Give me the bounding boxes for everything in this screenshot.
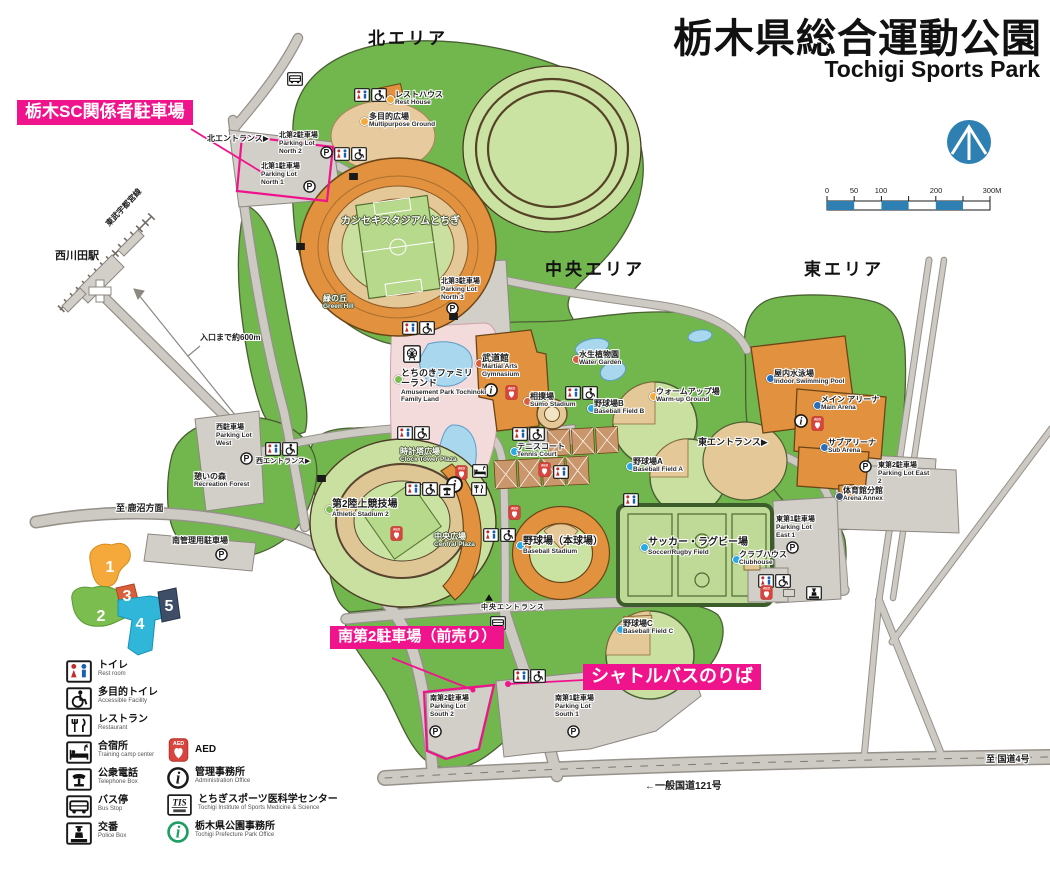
wheelchair-icon [283, 443, 298, 456]
toilet-icon [624, 494, 639, 507]
label-family-land: とちのきファミリーランドAmusement Park Tochinoki Fam… [401, 368, 491, 404]
wheelchair-icon [415, 427, 430, 440]
warmup-ground-shape [703, 422, 787, 500]
aed-icon [168, 738, 189, 762]
scale-bar: 0 50 100 200 300M [825, 186, 1001, 210]
marker-rest-house [386, 95, 395, 104]
aed-icon [509, 506, 521, 520]
legend-row-admin-office: 管理事務所Administration Office [167, 767, 250, 789]
police-box-icon [66, 822, 92, 845]
toilet-icon [335, 148, 350, 161]
label-forest: 憩いの森Recreation Forest [194, 472, 249, 489]
gate-shape [296, 243, 305, 250]
label-west-entrance: 西エントランス▶ [256, 458, 310, 466]
toilet-icon [355, 89, 370, 102]
label-field-b: 野球場BBaseball Field B [594, 399, 644, 416]
training-camp-icon [66, 741, 92, 764]
label-approach-distance: 入口まで約600m [200, 333, 260, 342]
label-lot-south-mgmt: 南管理用駐車場 [172, 536, 228, 545]
label-lot-north3: 北第3駐車場Parking Lot North 3 [441, 278, 489, 301]
label-lot-north1: 北第1駐車場Parking Lot North 1 [261, 163, 309, 186]
minimap-number-5: 5 [165, 598, 174, 615]
telephone-icon [440, 485, 455, 498]
nishikawada-station-shape [62, 230, 144, 312]
area-title-central: 中央エリア [545, 255, 645, 280]
aed-icon [539, 463, 551, 477]
telephone-icon [66, 768, 92, 791]
wheelchair-icon [583, 387, 598, 400]
north-track-oval [463, 66, 641, 232]
bus-stop-icon [66, 795, 92, 818]
toilet-icon [513, 428, 528, 441]
label-tennis: テニスコートTennis Court [517, 442, 565, 459]
aed-icon [391, 527, 403, 541]
police-box-icon [807, 587, 822, 600]
parking-icon [568, 726, 579, 737]
parking-icon [216, 549, 227, 560]
callout-sc-parking: 栃木SC関係者駐車場 [17, 100, 193, 125]
label-lot-north2: 北第2駐車場Parking Lot North 2 [279, 132, 327, 155]
scale-label: 300M [983, 186, 1002, 195]
label-clubhouse: クラブハウスClubhouse [739, 550, 787, 567]
aed-icon [761, 586, 773, 600]
parking-icon [241, 453, 252, 464]
minimap-number-3: 3 [123, 588, 132, 605]
minimap-number-1: 1 [106, 559, 115, 576]
minimap-number-2: 2 [97, 608, 106, 625]
wheelchair-icon [423, 483, 438, 496]
label-kanseki-stadium: カンセキスタジアムとちぎ [341, 216, 460, 228]
label-sumo: 相撲場Sumo Stadium [530, 392, 576, 409]
label-to-route-4: 至 国道4号 [986, 754, 1030, 764]
legend-row-training-camp: 合宿所Training camp center [66, 741, 154, 764]
info-icon [167, 767, 189, 789]
legend-row-bus-stop: バス停Bus Stop [66, 795, 128, 818]
gate-shape [317, 475, 326, 482]
label-water-garden: 水生植物園Water Garden [579, 350, 621, 367]
legend-row-accessible: 多目的トイレAccessible Facility [66, 687, 158, 710]
label-athletic2: 第2陸上競技場Athletic Stadium 2 [332, 499, 398, 518]
label-lot-east2: 東第2駐車場Parking Lot East 2 [878, 462, 930, 485]
legend-row-aed: AED [168, 738, 216, 762]
parking-icon [447, 303, 458, 314]
label-field-a: 野球場ABaseball Field A [633, 457, 683, 474]
label-warmup: ウォームアップ場Warm-up Ground [656, 387, 720, 404]
parking-icon [787, 542, 798, 553]
info-icon [795, 415, 807, 428]
callout-shuttle-bus: シャトルバスのりば [583, 664, 761, 690]
wheelchair-icon [372, 89, 387, 102]
label-pool: 屋内水泳場Indoor Swimming Pool [774, 369, 844, 386]
toilet-icon [554, 466, 569, 479]
wheelchair-icon [420, 322, 435, 335]
legend-row-restaurant: レストランRestaurant [66, 714, 148, 737]
legend-row-tis: とちぎスポーツ医科学センターTochigi Institute of Sport… [167, 794, 338, 816]
restaurant-icon [472, 483, 487, 496]
toilet-icon [398, 427, 413, 440]
parking-icon [430, 726, 441, 737]
ferris-wheel-icon [404, 346, 420, 362]
toilet-icon [514, 670, 529, 683]
label-route-121: ←一般国道121号 [645, 781, 722, 793]
left-arrow-icon: ← [645, 781, 655, 792]
label-sub-arena: サブアリーナSub Arena [828, 438, 876, 455]
label-main-arena: メイン アリーナMain Arena [821, 395, 879, 412]
wheelchair-icon [531, 670, 546, 683]
toilet-icon [66, 660, 92, 683]
training-camp-icon [473, 465, 488, 478]
parking-icon [860, 461, 871, 472]
minimap-number-4: 4 [136, 616, 145, 633]
north-arrow-icon [947, 120, 991, 164]
label-east-entrance: 東エントランス▶ [698, 437, 768, 447]
label-soccer-rugby: サッカー・ラグビー場Soccer/Rugby Field [648, 537, 748, 556]
label-green-hill: 緑の丘Green Hill [323, 294, 354, 311]
label-central-plaza: 中央広場Central Plaza [434, 532, 475, 549]
label-baseball-main: 野球場（本球場）Baseball Stadium [523, 536, 603, 555]
legend-row-toilet: トイレRest room [66, 660, 128, 683]
label-clock-plaza: 時計塔広場Clock Tower Plaza [400, 447, 457, 464]
park-map-canvas: P i i AED [0, 0, 1050, 873]
label-to-kanuma: 至 鹿沼方面 [116, 503, 164, 513]
area-title-east: 東エリア [804, 255, 884, 280]
legend-row-police-box: AED交番Police Box [66, 822, 126, 845]
scale-label: 0 [825, 186, 829, 195]
callout-south2-presale: 南第2駐車場（前売り） [330, 626, 504, 649]
legend-row-park-office: 栃木県公園事務所Tochigi Prefecture Park Office [167, 821, 275, 843]
wheelchair-icon [776, 575, 791, 588]
label-lot-south1: 南第1駐車場Parking Lot South 1 [555, 695, 603, 718]
bus-stop-icon [288, 73, 303, 86]
wheelchair-icon [501, 529, 516, 542]
marker-multipurpose [360, 117, 369, 126]
gate-shape [349, 173, 358, 180]
restaurant-icon [66, 714, 92, 737]
wheelchair-icon [66, 687, 92, 710]
green-info-icon [167, 821, 189, 843]
shed-shape [784, 590, 795, 597]
label-budokan: 武道館Martial Arts Gymnasium [482, 353, 542, 378]
tis-icon [167, 794, 192, 816]
label-annex: 体育館分館Arena Annex [843, 486, 883, 503]
scale-label: 200 [930, 186, 943, 195]
scale-label: 100 [875, 186, 888, 195]
athletic-stadium-shape [310, 439, 496, 607]
label-central-entrance: 中央エントランス [481, 604, 545, 612]
scale-label: 50 [850, 186, 858, 195]
toilet-icon [266, 443, 281, 456]
toilet-icon [484, 529, 499, 542]
label-north-entrance: 北エントランス▶ [207, 134, 269, 143]
label-lot-west: 西駐車場Parking Lot West [216, 424, 260, 447]
park-map-page: P i i AED [0, 0, 1050, 873]
wheelchair-icon [530, 428, 545, 441]
label-rest-house: レストハウスRest House [395, 90, 443, 107]
gate-shape [449, 313, 458, 320]
label-lot-east1: 東第1駐車場Parking Lot East 1 [776, 516, 820, 539]
wheelchair-icon [352, 148, 367, 161]
label-field-c: 野球場CBaseball Field C [623, 619, 673, 636]
toilet-icon [406, 483, 421, 496]
label-lot-south2: 南第2駐車場Parking Lot South 2 [430, 695, 478, 718]
aed-icon [812, 417, 824, 431]
toilet-icon [403, 322, 418, 335]
label-station: 西川田駅 [55, 250, 99, 263]
aed-icon [506, 386, 518, 400]
label-multipurpose: 多目的広場Multipurpose Ground [369, 112, 435, 129]
area-title-north: 北エリア [368, 24, 448, 49]
page-title-en: Tochigi Sports Park [824, 56, 1040, 83]
legend-row-telephone: 公衆電話Telephone Box [66, 768, 138, 791]
